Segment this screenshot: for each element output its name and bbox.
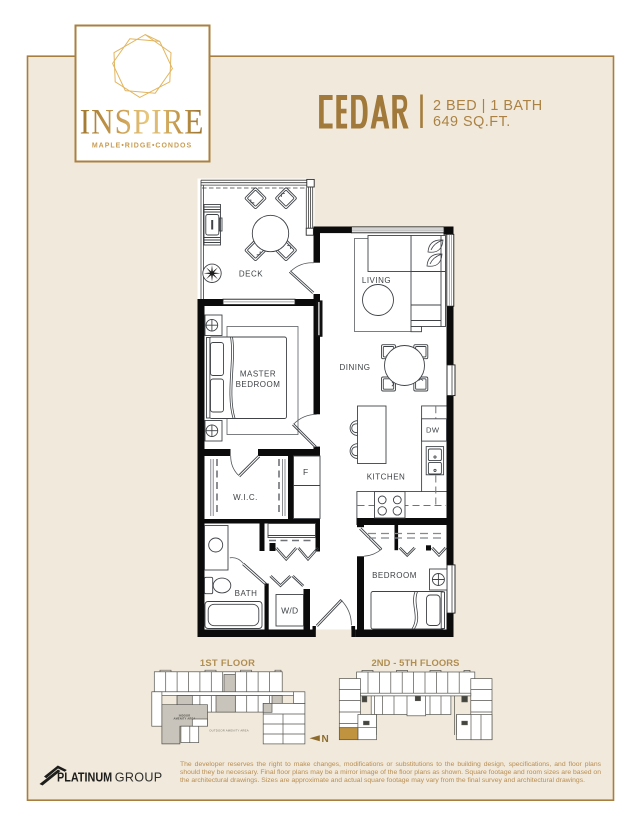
svg-text:N: N (322, 734, 329, 745)
svg-text:W/D: W/D (281, 606, 298, 616)
svg-text:1ST FLOOR: 1ST FLOOR (200, 657, 255, 668)
svg-text:GROUP: GROUP (115, 770, 163, 784)
svg-text:BEDROOM: BEDROOM (372, 571, 417, 580)
svg-text:OUTDOOR AMENITY AREA: OUTDOOR AMENITY AREA (209, 728, 249, 732)
svg-text:W.I.C.: W.I.C. (233, 493, 258, 502)
svg-text:2 BED | 1 BATH: 2 BED | 1 BATH (433, 98, 543, 114)
svg-text:PLATINUM: PLATINUM (57, 771, 112, 785)
svg-text:DECK: DECK (239, 270, 263, 279)
svg-text:MASTER: MASTER (240, 369, 276, 378)
svg-text:649 SQ.FT.: 649 SQ.FT. (433, 114, 511, 130)
svg-text:INSPIRE: INSPIRE (80, 103, 204, 142)
svg-text:DW: DW (426, 426, 440, 435)
svg-text:F: F (303, 467, 308, 477)
svg-text:BEDROOM: BEDROOM (236, 380, 281, 389)
svg-text:BATH: BATH (235, 589, 258, 598)
svg-text:KITCHEN: KITCHEN (367, 473, 406, 482)
svg-text:LIVING: LIVING (362, 276, 391, 285)
svg-text:AMENITY AREA: AMENITY AREA (174, 717, 196, 721)
svg-text:MAPLE•RIDGE•CONDOS: MAPLE•RIDGE•CONDOS (92, 143, 192, 150)
svg-text:2ND - 5TH FLOORS: 2ND - 5TH FLOORS (371, 657, 459, 668)
svg-text:DINING: DINING (340, 363, 371, 372)
